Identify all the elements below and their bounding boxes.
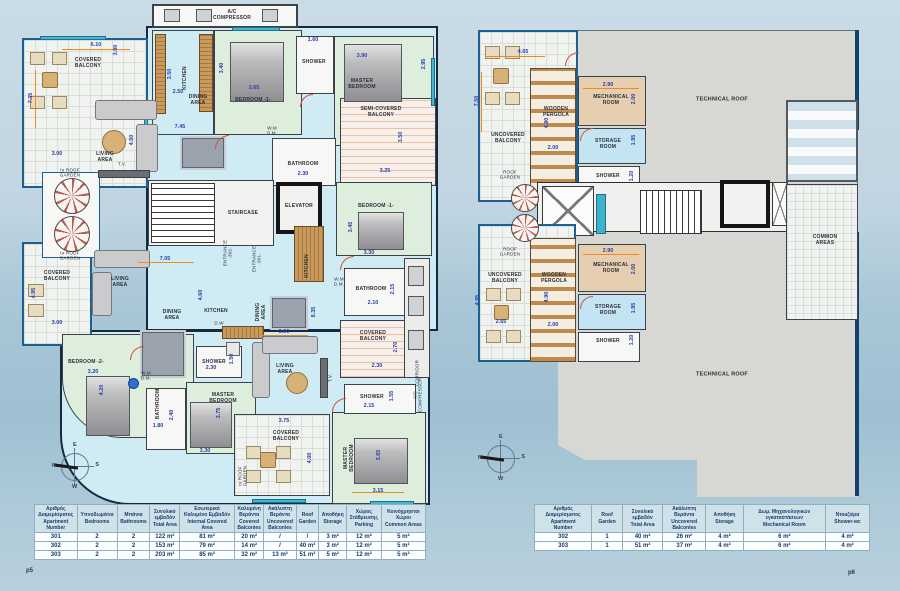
table-cell: 20 m²	[234, 533, 264, 542]
tv-label: T.V.	[327, 374, 332, 382]
bed	[190, 402, 232, 448]
side-table	[42, 72, 58, 88]
compass-s: S	[521, 454, 525, 460]
table-cell: 40 m²	[296, 542, 319, 551]
table-cell: 85 m²	[180, 551, 235, 560]
room-label-dining-right: DINING AREA	[255, 303, 267, 322]
technical-roof-top-label: TECHNICAL ROOF	[696, 97, 748, 104]
dimension-label: 3.50	[398, 132, 404, 143]
dimension-label: 2.00	[631, 264, 637, 275]
compass-rose: N E S W	[52, 444, 98, 490]
dimension-label: 3.75	[279, 418, 290, 424]
table-cell: 302	[535, 533, 592, 542]
column-header: Μπάνια Bathrooms	[117, 505, 150, 533]
room-label-semi-balcony: SEMI-COVERED BALCONY	[360, 106, 401, 118]
column-header: Roof Garden	[296, 505, 319, 533]
sofa	[92, 272, 112, 316]
table-cell: 4 m²	[825, 542, 869, 551]
room-label-master-br: MASTER BEDROOM	[343, 444, 355, 472]
ac-unit	[196, 9, 212, 22]
dimension-label: 1.95	[631, 135, 637, 146]
room-label-shower: SHOWER	[302, 59, 326, 65]
column-header: Ακάλυπτη Βεράντα Uncovered Balconies	[663, 505, 706, 533]
table-cell: 203 m²	[150, 551, 180, 560]
dimension-label: 1.50	[229, 354, 235, 365]
dimension-label: 2.70	[393, 342, 399, 353]
dimension-label: 1.20	[629, 171, 635, 182]
room-label-shower-2: SHOWER	[596, 338, 620, 344]
table-cell: 13 m²	[264, 551, 296, 560]
bed	[344, 44, 402, 102]
armchair	[485, 46, 500, 59]
table-cell: 2	[77, 551, 117, 560]
dimension-label: 2.95	[421, 59, 427, 70]
to-roof-garden-label: to ROOF GARDEN	[238, 466, 249, 486]
table-cell: 12 m²	[347, 533, 382, 542]
tv-unit	[98, 170, 150, 178]
dimension-label: 3.65	[376, 450, 382, 461]
armchair	[506, 288, 521, 301]
wooden-pergola-2	[530, 238, 576, 362]
to-roof-garden-label: to ROOF GARDEN	[60, 251, 80, 262]
ac-unit	[164, 9, 180, 22]
apartment-table-right: Αριθμός Διαμερίσματος Apartment NumberRo…	[534, 504, 870, 551]
side-table	[494, 305, 509, 320]
room-label-staircase: STAIRCASE	[228, 210, 258, 216]
column-header: Αποθήκη Storage	[319, 505, 347, 533]
page-number-right: p6	[848, 570, 855, 576]
tv-label: T.V.	[118, 161, 126, 166]
table-header-row: Αριθμός Διαμερίσματος Apartment NumberΥπ…	[35, 505, 426, 533]
armchair	[486, 330, 501, 343]
armchair	[52, 96, 67, 109]
dimension-label: 1.20	[629, 335, 635, 346]
armchair	[486, 288, 501, 301]
column-header: Κοινόχρηστοι Χώροι Common Areas	[381, 505, 425, 533]
room-label-bedroom1-right: BEDROOM -1-	[358, 203, 394, 209]
table-cell: 2	[117, 551, 150, 560]
table-cell: 14 m²	[234, 542, 264, 551]
table-cell: 5 m²	[381, 542, 425, 551]
dimension-label: 3.30	[200, 448, 211, 454]
armchair	[506, 330, 521, 343]
window-strip	[252, 499, 306, 503]
spiral-staircase	[511, 184, 539, 212]
dimension-label: 3.15	[373, 488, 384, 494]
table-cell: 5 m²	[381, 533, 425, 542]
wm-label: W.M D.M.	[141, 371, 151, 382]
kitchen-counter	[222, 326, 264, 339]
bed	[86, 376, 130, 436]
dimension-label: 3.90	[279, 329, 290, 335]
spiral-staircase	[511, 214, 539, 242]
room-label-shower-1: SHOWER	[596, 173, 620, 179]
dimension-label: 2.00	[631, 94, 637, 105]
dimension-label: 4.60	[198, 290, 204, 301]
dimension-label: 3.25	[380, 168, 391, 174]
dimension-label: 1.55	[389, 391, 395, 402]
compass-rose: N E S W	[478, 436, 524, 482]
room-label-kitchen-right: KITCHEN	[304, 254, 310, 278]
dimension-label: 4.95	[475, 295, 481, 306]
table-cell: 79 m²	[180, 542, 235, 551]
side-table	[493, 68, 509, 84]
column-header: Αριθμός Διαμερίσματος Apartment Number	[35, 505, 78, 533]
room-label-uncovered-1: UNCOVERED BALCONY	[491, 132, 525, 144]
dimension-label: 3.40	[219, 63, 225, 74]
armchair	[505, 92, 520, 105]
column-header: Χώρος Στάθμευσης Parking	[347, 505, 382, 533]
dimension-label: 3.90	[357, 53, 368, 59]
column-header: Εσωτερικό Καλυμένο Εμβαδόν Internal Cove…	[180, 505, 235, 533]
sofa	[136, 124, 158, 172]
room-label-covered-balcony-right: COVERED BALCONY	[360, 330, 386, 342]
room-label-living: LIVING AREA	[96, 151, 114, 163]
floor-plan-left: A/C COMPRESSOR COVERED BALCONY KITCHEN B…	[0, 0, 455, 510]
window-strip	[232, 27, 280, 31]
dimension-label: 2.90	[603, 82, 614, 88]
room-label-dining: DINING AREA	[189, 94, 208, 106]
dimension-label: 3.30	[364, 250, 375, 256]
table-cell: 1	[592, 542, 623, 551]
brochure-page: { "footer": { "page_left": "p5", "page_r…	[0, 0, 900, 591]
dimension-label: 6.10	[91, 42, 102, 48]
room-label-bedroom2: BEDROOM -2-	[68, 359, 104, 365]
table-cell: 12 m²	[347, 551, 382, 560]
room-label-covered-balcony-left: COVERED BALCONY	[44, 270, 70, 282]
washing-machine	[128, 378, 139, 389]
roof-plan-right: UNCOVERED BALCONY WOODEN PERGOLA MECHANI…	[455, 0, 900, 510]
table-cell: /	[296, 533, 319, 542]
column-header: Καλυμένη Βεράντα Covered Balconies	[234, 505, 264, 533]
ac-unit	[408, 266, 424, 286]
column-header: Roof Garden	[592, 505, 623, 533]
room-label-covered-balcony-bottom: COVERED BALCONY	[273, 430, 299, 442]
glass-strip	[596, 194, 606, 234]
armchair	[276, 470, 291, 483]
room-label-bedroom1: BEDROOM -1-	[235, 97, 271, 103]
table-row: 303151 m²37 m²4 m²6 m²4 m²	[535, 542, 870, 551]
table-cell: 32 m²	[234, 551, 264, 560]
column-header: Ακάλυπτη Βεράντα Uncovered Balconies	[264, 505, 296, 533]
dimension-label: 3.45	[348, 222, 354, 233]
dimension-label: 2.65	[496, 319, 507, 325]
table-cell: 302	[35, 542, 78, 551]
table-cell: 4 m²	[825, 533, 869, 542]
spiral-staircase	[54, 178, 90, 214]
table-cell: 2	[77, 533, 117, 542]
column-header: Υπνοδωμάτια Bedrooms	[77, 505, 117, 533]
elevator-shaft	[720, 180, 770, 228]
staircase-treads	[640, 190, 702, 234]
common-areas-label: COMMON AREAS	[813, 234, 838, 246]
dining-table	[142, 332, 184, 376]
room-label-living-left: LIVING AREA	[111, 276, 129, 288]
dimension-label: 2.30	[372, 363, 383, 369]
dimension-label: 2.30	[298, 171, 309, 177]
table-cell: 51 m²	[622, 542, 662, 551]
table-row: 30122122 m²81 m²20 m²//3 m²12 m²5 m²	[35, 533, 426, 542]
dimension-label: 8.35	[311, 307, 317, 318]
ac-unit	[262, 9, 278, 22]
wm-label: W.M D.M.	[334, 277, 344, 288]
room-label-dining-mid: DINING AREA	[163, 309, 182, 321]
dimension-line	[481, 72, 482, 132]
roof-garden-label: ROOF GARDEN	[500, 170, 520, 181]
dimension-label: 2.90	[603, 248, 614, 254]
table-cell: 40 m²	[622, 533, 662, 542]
table-cell: 6 m²	[743, 542, 825, 551]
table-cell: /	[264, 542, 296, 551]
entrance-302-label: ENTRANCE -302-	[223, 240, 234, 266]
wm-label: W.M D.M.	[267, 126, 277, 137]
armchair	[52, 52, 67, 65]
room-label-covered-balcony: COVERED BALCONY	[75, 57, 101, 69]
dimension-label: 7.45	[175, 124, 186, 130]
technical-roof-bottom-label: TECHNICAL ROOF	[696, 372, 748, 379]
dimension-label: 4.90	[544, 292, 550, 303]
dimension-label: 4.95	[31, 288, 37, 299]
dimension-line	[260, 335, 308, 336]
dimension-label: 7.35	[28, 93, 34, 104]
table-cell: 4 m²	[706, 533, 743, 542]
dimension-label: 3.20	[88, 369, 99, 375]
dimension-label: 2.00	[548, 145, 559, 151]
room-label-uncovered-2: UNCOVERED BALCONY	[488, 272, 522, 284]
room-label-master: MASTER BEDROOM	[348, 78, 376, 90]
room-label-storage-2: STORAGE ROOM	[595, 304, 621, 316]
compass-n: N	[52, 463, 56, 469]
dimension-label: 4.65	[518, 49, 529, 55]
armchair	[246, 446, 261, 459]
room-label-pergola-2: WOODEN PERGOLA	[541, 272, 567, 284]
armchair	[28, 304, 44, 317]
ac-compressor-right-label: A/C COMPRESSOR	[413, 378, 424, 413]
dimension-line	[35, 70, 36, 128]
table-cell: 6 m²	[743, 533, 825, 542]
dimension-label: 3.65	[249, 85, 260, 91]
table-cell: 3 m²	[319, 533, 347, 542]
table-cell: 3 m²	[319, 542, 347, 551]
table-row: 30222153 m²79 m²14 m²/40 m²3 m²12 m²5 m²	[35, 542, 426, 551]
table-header-row: Αριθμός Διαμερίσματος Apartment NumberRo…	[535, 505, 870, 533]
room-label-kitchen: KITCHEN	[182, 66, 188, 90]
dimension-label: 1.95	[631, 303, 637, 314]
dimension-label: 2.40	[169, 410, 175, 421]
bed	[354, 438, 408, 484]
dimension-label: 2.15	[390, 284, 396, 295]
compass-e: E	[73, 442, 77, 448]
wooden-pergola-1	[530, 68, 576, 198]
room-label-mechanical-1: MECHANICAL ROOM	[593, 94, 629, 106]
room-label-shower-br: SHOWER	[360, 394, 384, 400]
dishwasher-label: D.W	[214, 320, 223, 325]
room-label-pergola-1: WOODEN PERGOLA	[543, 106, 569, 118]
louver-structure	[786, 100, 858, 182]
page-number-left: p5	[26, 568, 33, 574]
armchair	[276, 446, 291, 459]
room-label-living-bottom: LIVING AREA	[276, 363, 294, 375]
common-areas-tile	[786, 184, 858, 320]
table-cell: 301	[35, 533, 78, 542]
dimension-label: 7.50	[474, 96, 480, 107]
compass-w: W	[498, 476, 503, 482]
dimension-label: 2.50	[173, 89, 184, 95]
dimension-line	[485, 56, 545, 57]
table-cell: 81 m²	[180, 533, 235, 542]
column-header: Αποθήκη Storage	[706, 505, 743, 533]
room-label-mechanical-2: MECHANICAL ROOM	[593, 262, 629, 274]
table-cell: 51 m²	[296, 551, 319, 560]
dimension-label: 2.30	[206, 365, 217, 371]
dimension-label: 2.10	[368, 300, 379, 306]
room-label-bathroom-right: BATHROOM	[356, 286, 387, 292]
table-cell: 122 m²	[150, 533, 180, 542]
to-roof-garden-label: to ROOF GARDEN	[60, 168, 80, 179]
column-header: Αριθμός Διαμερίσματος Apartment Number	[535, 505, 592, 533]
table-cell: 1	[592, 533, 623, 542]
dimension-line	[138, 262, 194, 263]
dimension-line	[583, 88, 639, 89]
sofa	[95, 100, 157, 120]
table-row: 302140 m²26 m²4 m²6 m²4 m²	[535, 533, 870, 542]
window-strip	[40, 36, 106, 40]
ac-unit	[408, 330, 424, 350]
table-cell: /	[264, 533, 296, 542]
compass-s: S	[95, 462, 99, 468]
window-strip	[431, 58, 435, 106]
roof-garden-label: ROOF GARDEN	[500, 247, 520, 258]
table-row: 30322203 m²85 m²32 m²13 m²51 m²5 m²12 m²…	[35, 551, 426, 560]
dimension-label: 4.00	[307, 453, 313, 464]
dimension-label: 3.00	[113, 45, 119, 56]
room-label-elevator: ELEVATOR	[285, 203, 313, 209]
ac-unit	[408, 296, 424, 316]
staircase-treads	[151, 183, 215, 243]
table-cell: 37 m²	[663, 542, 706, 551]
dimension-label: 3.00	[52, 151, 63, 157]
table-cell: 5 m²	[381, 551, 425, 560]
room-label-bathroom-bottom: BATHROOM	[155, 389, 161, 420]
room-label-ac: A/C COMPRESSOR	[213, 9, 251, 21]
compass-e: E	[499, 434, 503, 440]
dimension-label: 4.20	[99, 385, 105, 396]
table-cell: 2	[77, 542, 117, 551]
dining-table	[272, 298, 306, 328]
dimension-line	[62, 49, 130, 50]
column-header: Δωμ. Μηχανολογικών εγκαταστάσεων Mechani…	[743, 505, 825, 533]
table-cell: 2	[117, 542, 150, 551]
table-cell: 4 m²	[706, 542, 743, 551]
compass-w: W	[72, 484, 77, 490]
room-bathroom-right	[344, 268, 408, 316]
room-shower-top	[296, 36, 334, 94]
bed	[358, 212, 404, 250]
side-table	[260, 452, 276, 468]
compass-n: N	[478, 455, 482, 461]
column-header: Ντουζιέρα Shower-wc	[825, 505, 869, 533]
coffee-table	[286, 372, 308, 394]
room-label-storage-1: STORAGE ROOM	[595, 138, 621, 150]
dimension-label: 1.80	[153, 423, 164, 429]
column-header: Συνολικό εμβαδόν Total Area	[150, 505, 180, 533]
entrance-301-label: ENTRANCE -301-	[252, 246, 263, 272]
dimension-label: 3.75	[216, 408, 222, 419]
room-bathroom-bottom	[146, 388, 186, 450]
room-label-master-left: MASTER BEDROOM	[209, 392, 237, 404]
armchair	[485, 92, 500, 105]
dimension-line	[583, 254, 639, 255]
table-cell: 26 m²	[663, 533, 706, 542]
table-cell: 303	[35, 551, 78, 560]
bed	[230, 42, 284, 102]
apartment-table-left: Αριθμός Διαμερίσματος Apartment NumberΥπ…	[34, 504, 426, 560]
table-cell: 12 m²	[347, 542, 382, 551]
dimension-label: 3.50	[167, 69, 173, 80]
table-cell: 303	[535, 542, 592, 551]
table-cell: 5 m²	[319, 551, 347, 560]
column-header: Συνολικό εμβαδόν Total Area	[622, 505, 662, 533]
dimension-label: 3.00	[52, 320, 63, 326]
dimension-label: 1.60	[308, 37, 319, 43]
room-label-bathroom: BATHROOM	[288, 161, 319, 167]
room-label-kitchen-mid: KITCHEN	[204, 308, 228, 314]
table-cell: 2	[117, 533, 150, 542]
spiral-staircase	[54, 216, 90, 252]
dimension-label: 4.90	[544, 118, 550, 129]
dimension-label: 2.00	[548, 322, 559, 328]
armchair	[30, 52, 45, 65]
dimension-label: 7.05	[160, 256, 171, 262]
dimension-label: 2.15	[364, 403, 375, 409]
sofa	[262, 336, 318, 354]
sofa	[94, 250, 150, 268]
table-cell: 153 m²	[150, 542, 180, 551]
dimension-label: 4.00	[129, 135, 135, 146]
